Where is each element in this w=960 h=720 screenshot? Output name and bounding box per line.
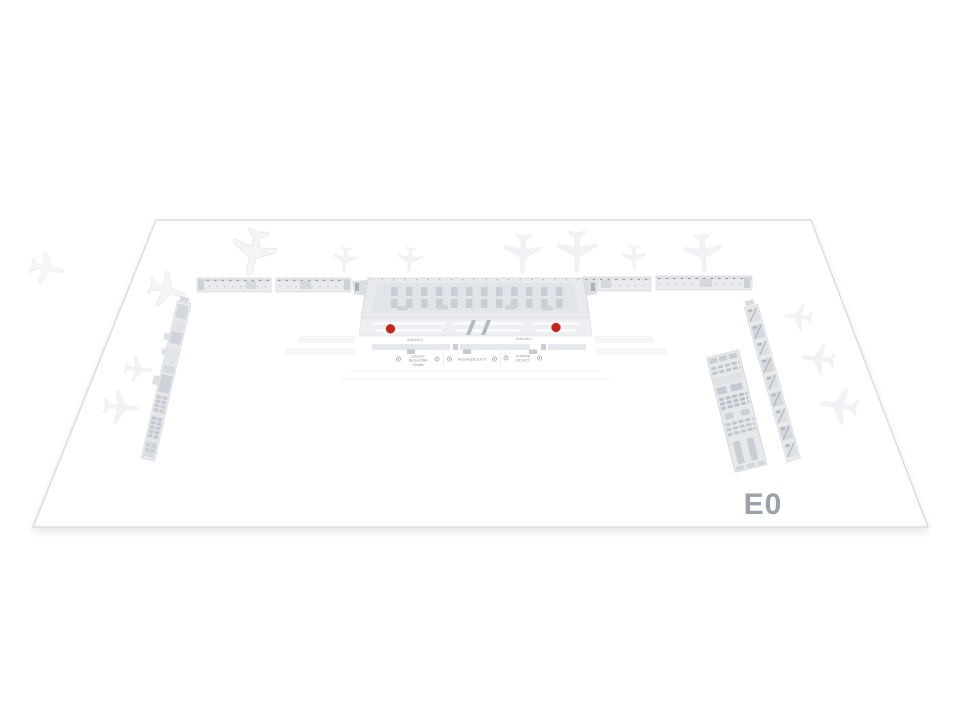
gate-concourse-segment-4 [656,276,752,290]
arrival-area-label-left: Ankunft 2 [407,338,423,342]
level-label: E0 [744,488,783,521]
svg-text:Shuttle: Shuttle [412,363,423,367]
elevator-icon [529,350,537,355]
poi-marker-left[interactable] [386,324,395,333]
gate-concourse-segment-2 [276,278,351,292]
svg-text:B123/71: B123/71 [516,358,529,362]
elevator-icon [407,350,415,355]
svg-text:Ausstieg B123/75: Ausstieg B123/75 [458,357,486,361]
elevator-icon [463,350,471,355]
gate-concourse-segment-1 [197,278,271,292]
airport-map[interactable]: Ankunft 2 Ankunft 1 Umland- Busse/ÖBA Sh… [0,0,960,720]
airplane-icon [28,250,66,287]
svg-text:Ausstieg: Ausstieg [516,354,530,358]
arrival-area-label-right: Ankunft 1 [516,337,532,341]
poi-marker-right[interactable] [552,323,561,332]
